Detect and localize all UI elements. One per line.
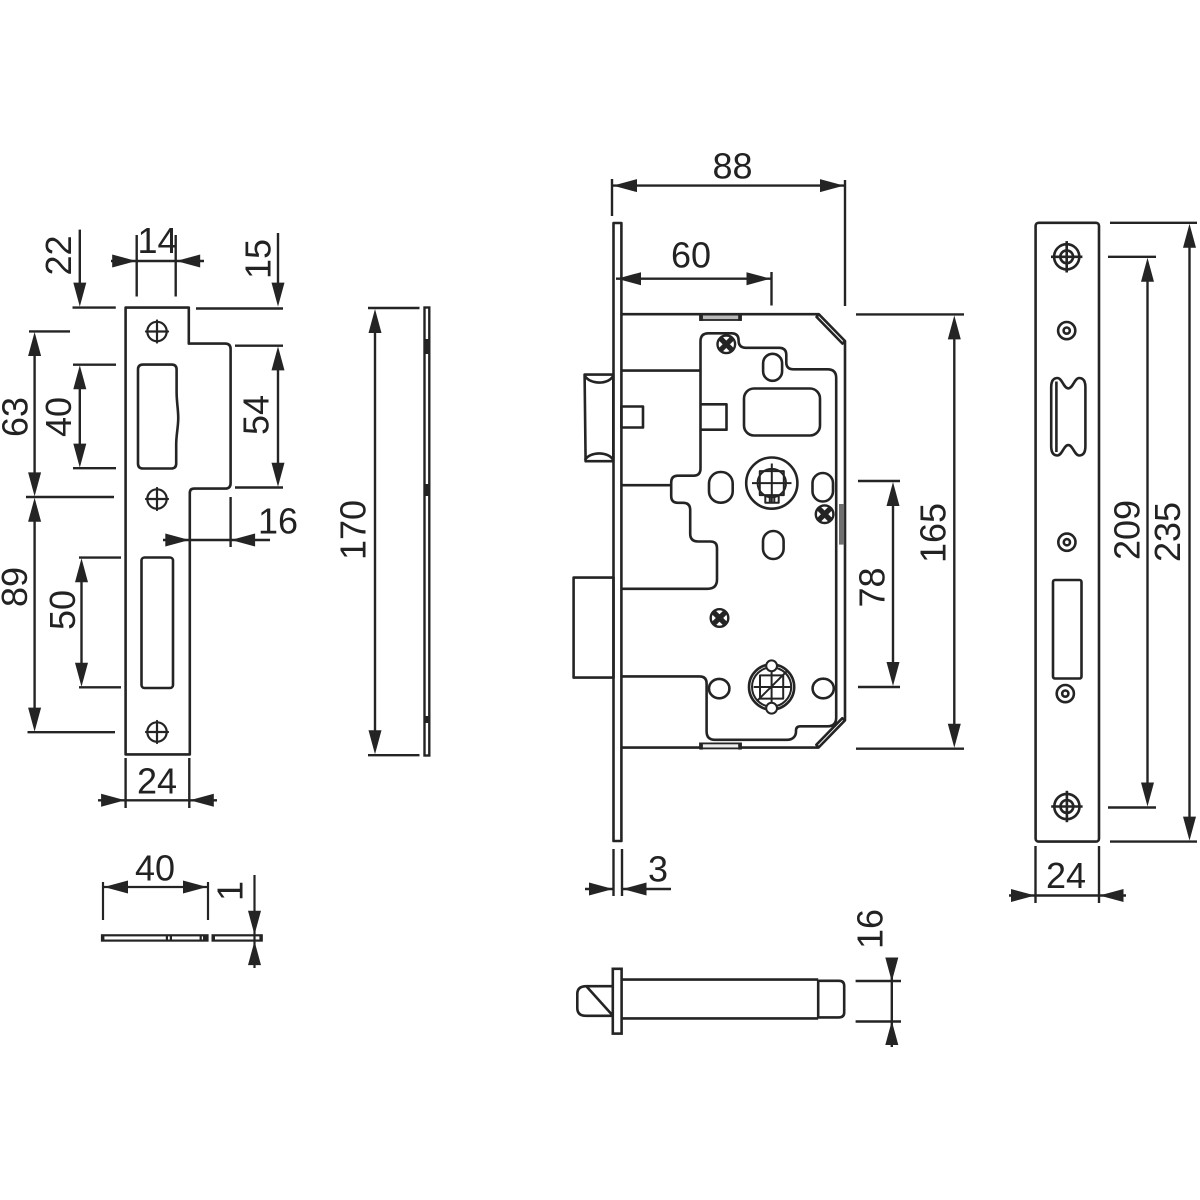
svg-text:24: 24 [1046,855,1086,896]
svg-text:60: 60 [671,234,711,275]
svg-text:209: 209 [1106,500,1147,560]
svg-text:50: 50 [42,590,83,630]
svg-text:89: 89 [0,567,35,607]
svg-text:165: 165 [912,503,953,563]
svg-text:16: 16 [849,909,890,949]
svg-text:54: 54 [235,395,276,435]
svg-text:16: 16 [258,500,298,541]
svg-text:40: 40 [135,847,175,888]
svg-text:78: 78 [851,567,892,607]
svg-text:170: 170 [332,500,373,560]
svg-text:40: 40 [38,397,79,437]
svg-text:14: 14 [137,220,177,261]
svg-text:1: 1 [209,881,250,901]
svg-text:3: 3 [648,848,668,889]
svg-text:15: 15 [237,239,278,279]
svg-text:24: 24 [137,760,177,801]
svg-text:88: 88 [712,145,752,186]
svg-text:22: 22 [38,235,79,275]
svg-text:63: 63 [0,397,35,437]
svg-text:235: 235 [1147,502,1188,562]
